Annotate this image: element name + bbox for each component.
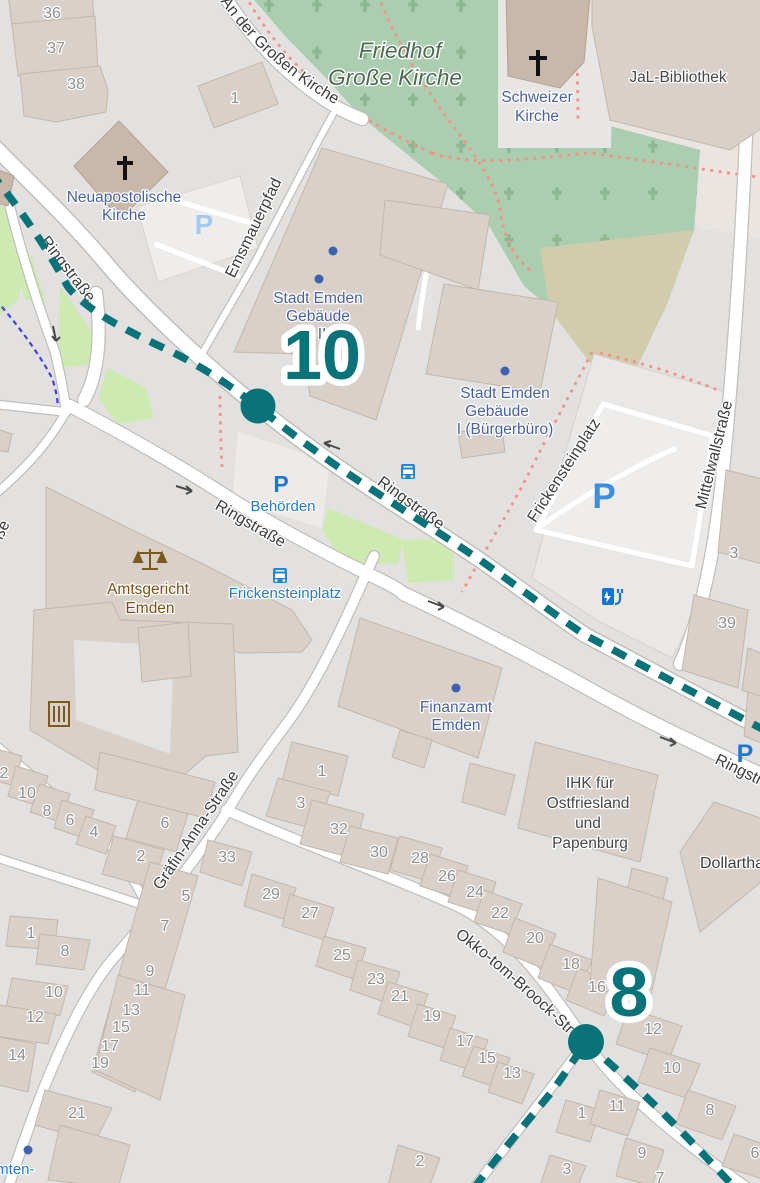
svg-text:20: 20 bbox=[526, 930, 544, 947]
svg-text:38: 38 bbox=[67, 76, 85, 93]
svg-text:8: 8 bbox=[610, 953, 649, 1031]
svg-text:8: 8 bbox=[61, 943, 70, 960]
svg-text:13: 13 bbox=[122, 1002, 140, 1019]
svg-text:3: 3 bbox=[730, 545, 739, 562]
svg-text:Stadt Emden: Stadt Emden bbox=[273, 290, 363, 307]
svg-text:9: 9 bbox=[146, 963, 155, 980]
svg-text:1: 1 bbox=[578, 1105, 587, 1122]
svg-text:33: 33 bbox=[218, 849, 236, 866]
svg-text:10: 10 bbox=[45, 984, 63, 1001]
svg-text:21: 21 bbox=[391, 988, 409, 1005]
svg-text:19: 19 bbox=[423, 1008, 441, 1025]
svg-text:25: 25 bbox=[333, 947, 351, 964]
svg-text:27: 27 bbox=[301, 905, 319, 922]
svg-text:7: 7 bbox=[161, 918, 170, 935]
svg-text:5: 5 bbox=[182, 888, 191, 905]
svg-text:24: 24 bbox=[466, 884, 484, 901]
svg-text:16: 16 bbox=[588, 979, 606, 996]
svg-text:26: 26 bbox=[438, 868, 456, 885]
svg-text:Gebäude: Gebäude bbox=[465, 403, 529, 420]
svg-text:10: 10 bbox=[283, 316, 361, 394]
svg-text:14: 14 bbox=[8, 1047, 26, 1064]
svg-text:3: 3 bbox=[297, 795, 306, 812]
svg-text:7: 7 bbox=[656, 1170, 665, 1183]
svg-text:8: 8 bbox=[706, 1102, 715, 1119]
svg-text:15: 15 bbox=[112, 1019, 130, 1036]
svg-text:Neuapostolische: Neuapostolische bbox=[67, 189, 182, 206]
svg-text:10: 10 bbox=[18, 785, 36, 802]
svg-text:1: 1 bbox=[318, 763, 327, 780]
svg-text:P: P bbox=[273, 471, 288, 497]
svg-text:19: 19 bbox=[91, 1055, 109, 1072]
svg-text:2: 2 bbox=[137, 848, 146, 865]
svg-text:6: 6 bbox=[66, 812, 75, 829]
svg-text:Stadt Emden: Stadt Emden bbox=[460, 385, 550, 402]
svg-text:21: 21 bbox=[68, 1105, 86, 1122]
svg-text:Emden: Emden bbox=[125, 600, 174, 617]
svg-text:Finanzamt: Finanzamt bbox=[420, 699, 493, 716]
svg-text:I (Bürgerbüro): I (Bürgerbüro) bbox=[457, 421, 553, 438]
svg-text:und: und bbox=[575, 815, 601, 832]
svg-text:17: 17 bbox=[101, 1038, 119, 1055]
svg-text:17: 17 bbox=[456, 1033, 474, 1050]
svg-text:1: 1 bbox=[27, 925, 36, 942]
svg-text:Ostfriesland: Ostfriesland bbox=[547, 795, 630, 812]
svg-text:Dollarthafen: Dollarthafen bbox=[700, 855, 760, 872]
svg-text:IHK für: IHK für bbox=[566, 775, 614, 792]
svg-text:15: 15 bbox=[478, 1050, 496, 1067]
svg-text:P: P bbox=[592, 477, 615, 516]
svg-text:29: 29 bbox=[262, 886, 280, 903]
svg-text:13: 13 bbox=[503, 1065, 521, 1082]
svg-text:2: 2 bbox=[0, 765, 9, 782]
svg-text:9: 9 bbox=[638, 1145, 647, 1162]
svg-text:37: 37 bbox=[47, 40, 65, 57]
svg-text:11: 11 bbox=[134, 982, 151, 999]
svg-text:Amtsgericht: Amtsgericht bbox=[107, 581, 190, 598]
svg-text:6: 6 bbox=[161, 815, 170, 832]
svg-text:Beamten-: Beamten- bbox=[0, 1161, 35, 1178]
svg-text:18: 18 bbox=[562, 956, 580, 973]
svg-text:28: 28 bbox=[411, 850, 429, 867]
svg-text:2: 2 bbox=[416, 1153, 425, 1170]
svg-text:P: P bbox=[195, 209, 214, 240]
svg-text:22: 22 bbox=[491, 905, 509, 922]
svg-text:6: 6 bbox=[751, 1145, 760, 1162]
svg-text:Friedhof: Friedhof bbox=[359, 38, 444, 63]
svg-text:Papenburg: Papenburg bbox=[552, 835, 628, 852]
svg-text:39: 39 bbox=[718, 615, 736, 632]
svg-text:4: 4 bbox=[90, 824, 99, 841]
svg-text:Kirche: Kirche bbox=[515, 108, 559, 125]
svg-text:32: 32 bbox=[330, 821, 348, 838]
svg-text:36: 36 bbox=[43, 5, 61, 22]
svg-text:3: 3 bbox=[563, 1161, 572, 1178]
svg-text:30: 30 bbox=[370, 844, 388, 861]
svg-text:Emden: Emden bbox=[431, 717, 480, 734]
svg-text:Schweizer: Schweizer bbox=[501, 89, 573, 106]
svg-text:Behörden: Behörden bbox=[250, 498, 315, 515]
svg-text:JaL-Bibliothek: JaL-Bibliothek bbox=[629, 69, 727, 86]
svg-text:Frickensteinplatz: Frickensteinplatz bbox=[229, 585, 342, 602]
svg-text:11: 11 bbox=[609, 1098, 626, 1115]
svg-text:12: 12 bbox=[26, 1009, 44, 1026]
svg-text:Kirche: Kirche bbox=[102, 207, 146, 224]
svg-text:1: 1 bbox=[231, 90, 240, 107]
svg-text:23: 23 bbox=[367, 971, 385, 988]
svg-text:8: 8 bbox=[43, 803, 52, 820]
svg-text:Große Kirche: Große Kirche bbox=[328, 65, 462, 90]
svg-text:10: 10 bbox=[663, 1060, 681, 1077]
